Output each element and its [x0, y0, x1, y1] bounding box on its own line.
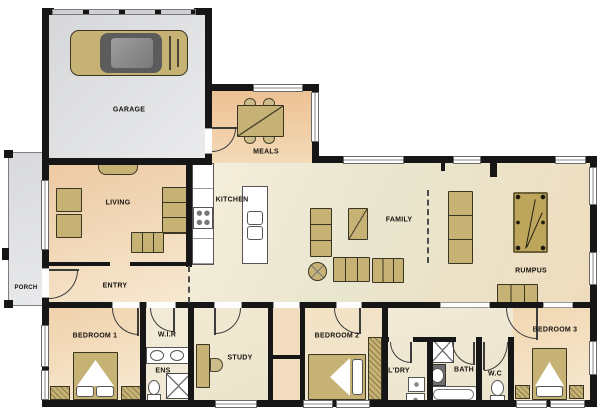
room-label-wir: W.I.R: [158, 332, 176, 339]
toilet-icon: [491, 380, 504, 396]
wall: [476, 342, 482, 407]
pool-table-icon: [513, 192, 548, 253]
armchair-icon: [56, 188, 82, 212]
window: [555, 156, 586, 164]
bedside-hatch: [50, 386, 70, 400]
toilet-icon: [148, 380, 160, 395]
room-label-rumpus: RUMPUS: [515, 268, 547, 275]
wall: [427, 342, 433, 407]
window: [589, 167, 597, 205]
sofa-icon: [372, 258, 404, 283]
wall: [186, 163, 192, 267]
room-label-kitchen: KITCHEN: [216, 197, 249, 204]
window: [215, 400, 257, 408]
stove-icon: [193, 207, 213, 229]
sofa-icon: [310, 208, 332, 257]
window: [343, 156, 404, 164]
wall: [176, 302, 214, 308]
room-label-meals: MEALS: [253, 149, 279, 156]
room-label-bedroom2: BEDROOM 2: [315, 333, 360, 340]
window: [336, 400, 370, 408]
dining-table-icon: [237, 105, 284, 137]
window: [311, 92, 319, 142]
window: [41, 370, 49, 400]
wall: [508, 337, 514, 342]
bedside-hatch: [569, 385, 584, 399]
wall: [42, 8, 49, 165]
floor-porch: [8, 152, 44, 306]
room-label-family: FAMILY: [386, 217, 413, 224]
wall: [300, 308, 305, 407]
door-opening: [273, 302, 300, 308]
wall: [490, 163, 497, 177]
wall: [205, 8, 212, 128]
room-label-bath: BATH: [454, 367, 474, 374]
sink-icon: [247, 226, 263, 240]
wall: [140, 302, 146, 407]
door-opening: [205, 128, 212, 154]
pillow-icon: [536, 386, 563, 397]
room-label-bedroom1: BEDROOM 1: [73, 333, 118, 340]
wall: [42, 302, 112, 308]
room-label-bedroom3: BEDROOM 3: [533, 327, 578, 334]
wall: [441, 163, 445, 171]
wall: [300, 302, 336, 308]
basin-icon: [170, 350, 184, 361]
porch-stub: [2, 248, 9, 260]
wall: [573, 302, 597, 308]
laundry-tub-icon: [408, 377, 425, 392]
car-windshield-line: [169, 36, 171, 70]
bedside-hatch: [515, 385, 530, 399]
pillow-icon: [76, 386, 94, 397]
window: [589, 341, 597, 375]
window: [253, 84, 303, 92]
tv-unit-icon: [348, 208, 368, 240]
cased-opening: [440, 302, 490, 308]
room-label-entry: ENTRY: [103, 283, 128, 290]
wall: [382, 337, 389, 342]
car-bonnet-line: [177, 39, 179, 67]
basin-icon: [150, 350, 164, 361]
window: [589, 252, 597, 285]
window: [516, 400, 547, 408]
porch-stub: [4, 150, 13, 158]
floor-linen: [273, 308, 300, 400]
window: [41, 325, 49, 367]
sofa-icon: [333, 257, 370, 282]
room-label-porch: PORCH: [15, 285, 38, 291]
bathtub-inner: [433, 389, 474, 400]
armchair-icon: [56, 214, 82, 238]
window: [303, 400, 333, 408]
cased-opening: [543, 302, 573, 308]
room-label-garage: GARAGE: [113, 107, 145, 114]
window: [550, 400, 585, 408]
pillow-icon: [96, 386, 114, 397]
wall: [508, 342, 514, 407]
dashed-divider: [188, 266, 190, 303]
room-label-study: STUDY: [228, 355, 253, 362]
porch-stub: [4, 300, 13, 308]
bedside-hatch: [121, 386, 141, 400]
wall: [188, 308, 194, 407]
room-label-ens: ENS: [155, 368, 170, 375]
garage-door: [52, 9, 196, 15]
wall: [130, 262, 188, 266]
car-roof: [111, 38, 153, 68]
wall: [362, 302, 440, 308]
room-label-wc: W.C: [488, 371, 502, 378]
door-opening: [42, 268, 49, 298]
room-label-living: LIVING: [106, 200, 131, 207]
sofa-icon: [131, 232, 164, 253]
coffee-table-icon: [308, 262, 327, 281]
wall: [476, 337, 482, 342]
sink-icon: [247, 211, 263, 225]
dashed-divider: [427, 190, 429, 263]
window: [453, 156, 481, 164]
wall: [382, 302, 388, 407]
wardrobe-icon: [368, 337, 382, 400]
sofa-icon: [448, 191, 473, 264]
desk-icon: [196, 344, 210, 388]
floor-plan: GARAGE MEALS KITCHEN LIVING ENTRY PORCH …: [0, 0, 600, 417]
sofa-icon: [162, 187, 187, 234]
window: [41, 180, 49, 250]
room-label-laundry: L'DRY: [388, 368, 410, 375]
wall: [413, 337, 456, 342]
pillow-icon: [352, 359, 363, 395]
wall: [49, 262, 110, 266]
wall: [273, 355, 300, 359]
